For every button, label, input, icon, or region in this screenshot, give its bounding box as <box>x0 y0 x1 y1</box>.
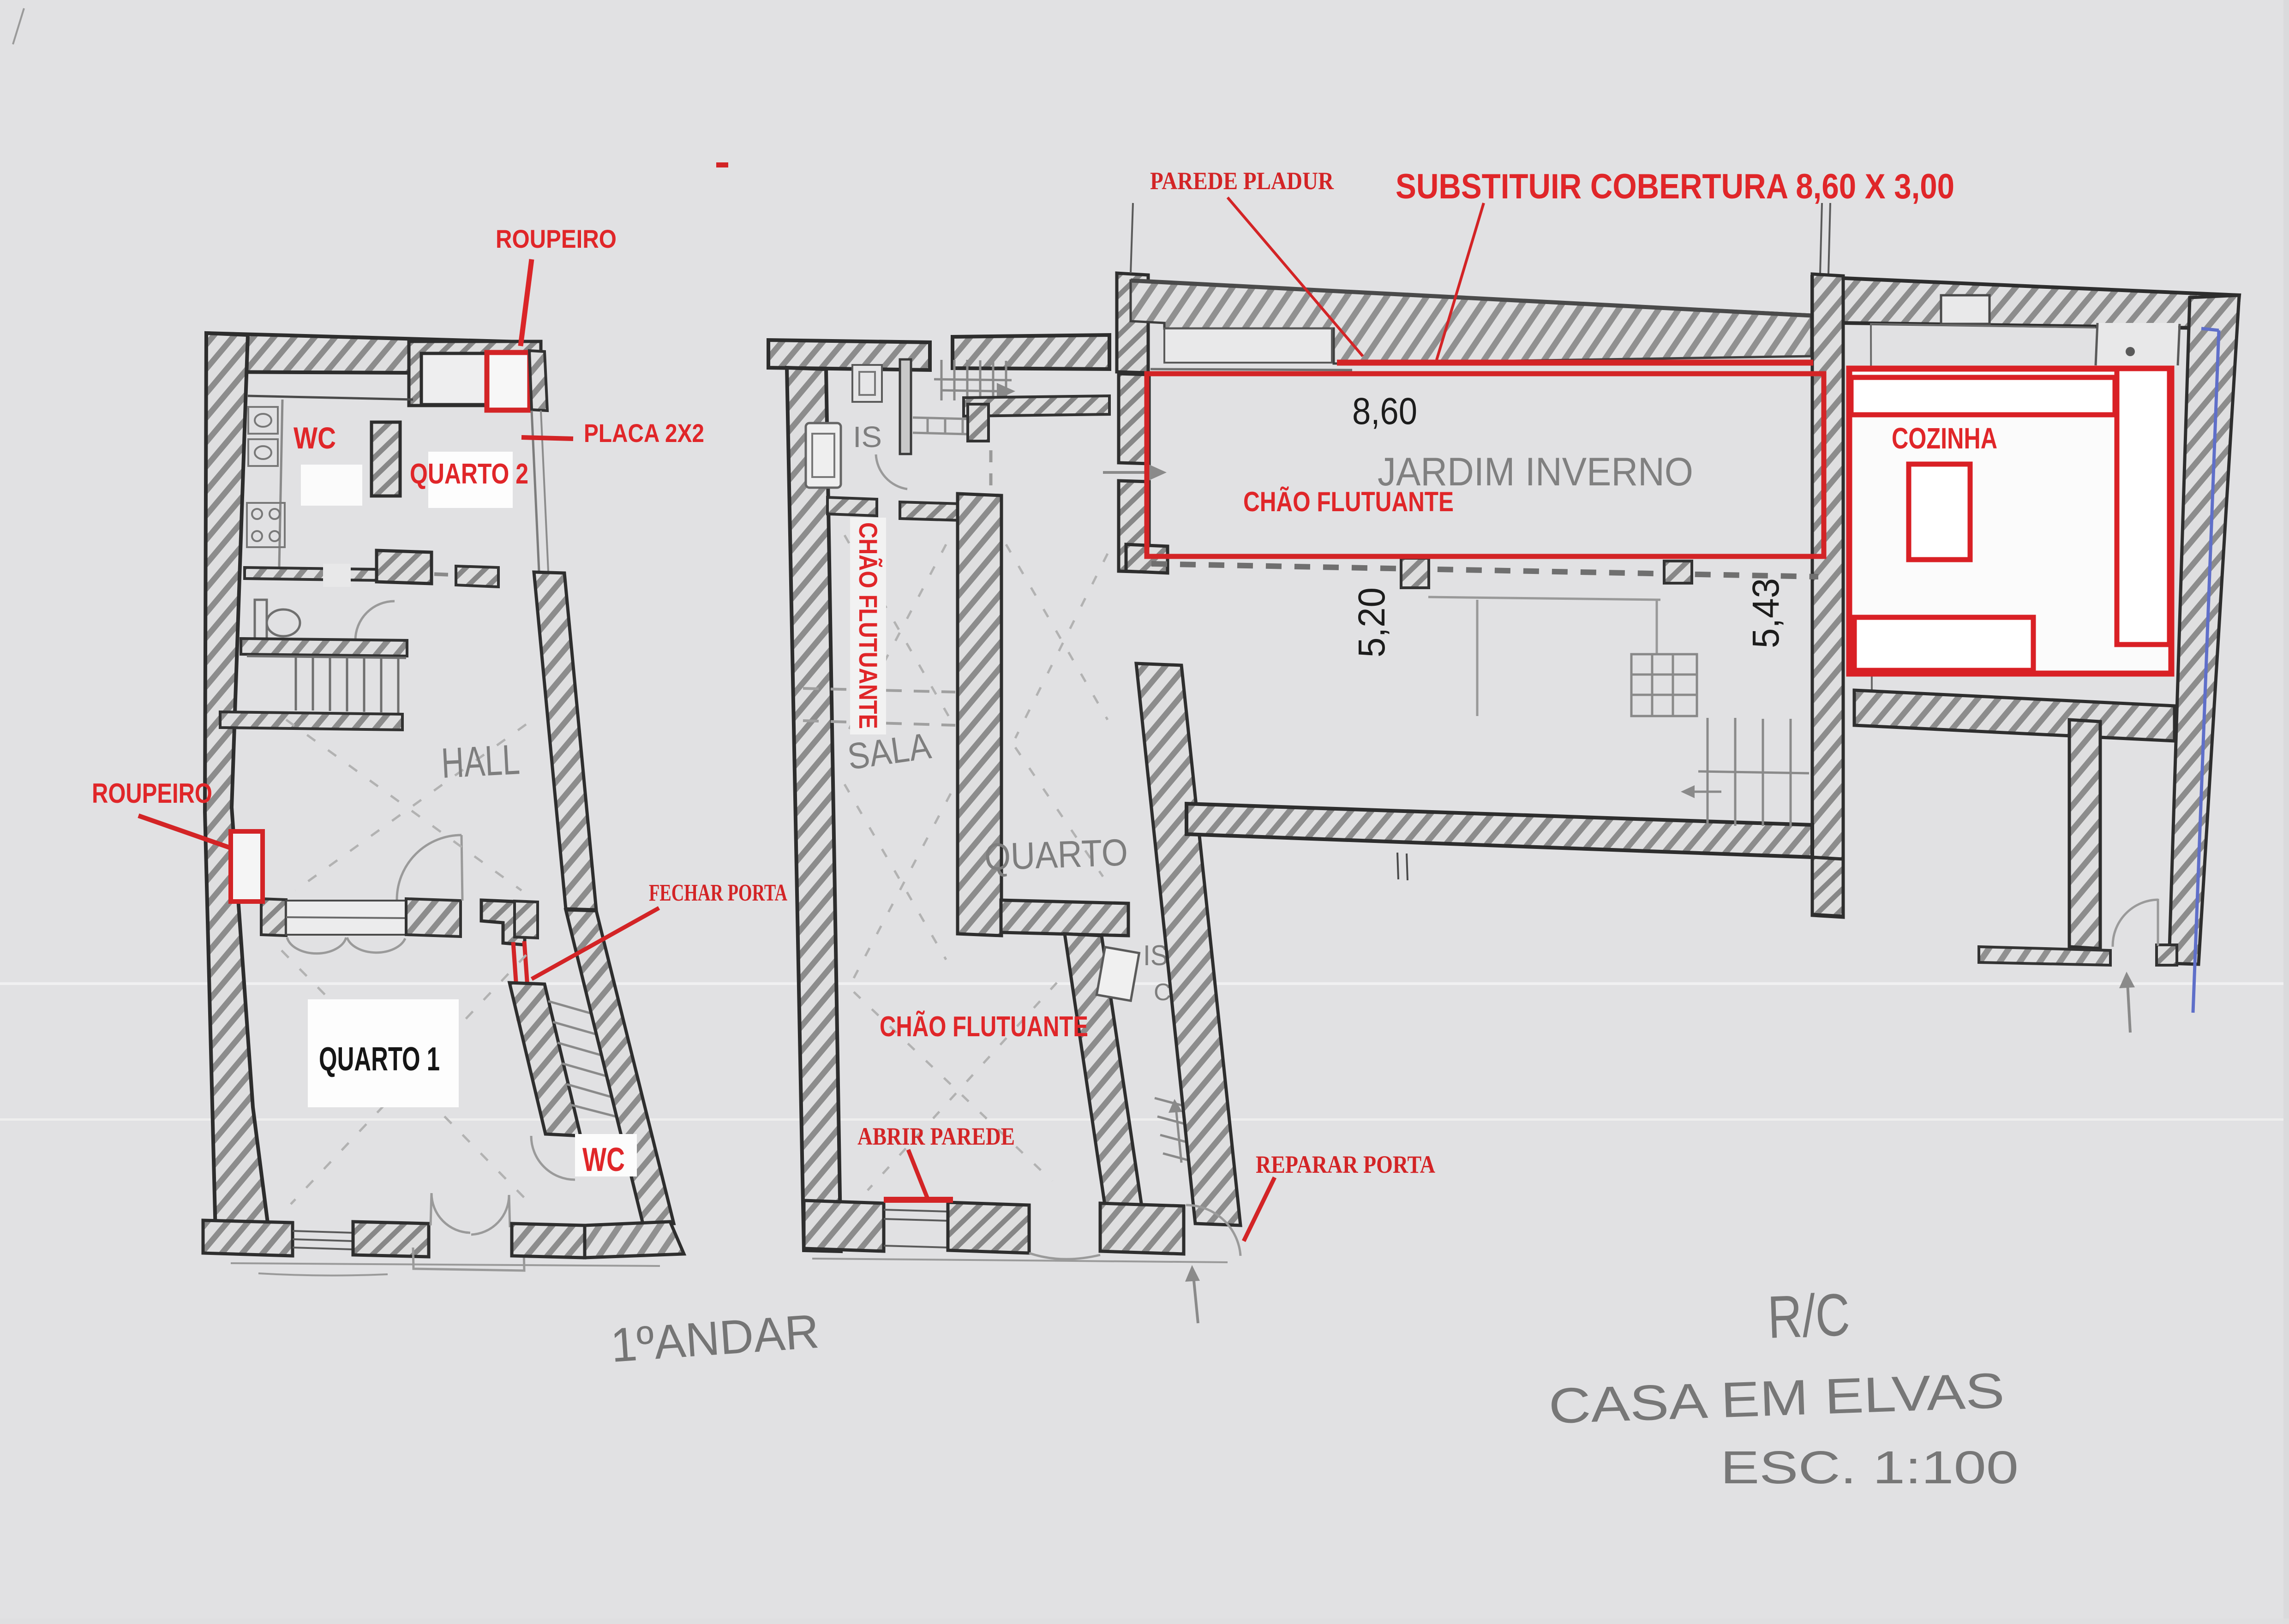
svg-text:QUARTO 1: QUARTO 1 <box>319 1041 440 1078</box>
svg-text:5,43: 5,43 <box>1745 578 1787 648</box>
svg-text:HALL: HALL <box>440 736 521 787</box>
svg-text:WC: WC <box>294 421 336 455</box>
svg-text:REPARAR PORTA: REPARAR PORTA <box>1256 1151 1435 1178</box>
svg-text:ESC. 1:100: ESC. 1:100 <box>1720 1442 2019 1493</box>
svg-text:WC: WC <box>582 1141 625 1178</box>
svg-text:IS: IS <box>853 420 882 454</box>
svg-text:PLACA 2X2: PLACA 2X2 <box>584 418 704 448</box>
svg-text:8,60: 8,60 <box>1352 390 1417 432</box>
svg-text:FECHAR PORTA: FECHAR PORTA <box>649 880 787 906</box>
svg-text:SUBSTITUIR COBERTURA 8,60 X 3,: SUBSTITUIR COBERTURA 8,60 X 3,00 <box>1396 167 1954 206</box>
svg-text:QUARTO 2: QUARTO 2 <box>410 458 528 490</box>
svg-text:PAREDE PLADUR: PAREDE PLADUR <box>1150 167 1334 195</box>
svg-text:ABRIR PAREDE: ABRIR PAREDE <box>857 1122 1015 1150</box>
svg-text:ROUPEIRO: ROUPEIRO <box>496 224 617 253</box>
svg-text:CHÃO FLUTUANTE: CHÃO FLUTUANTE <box>854 522 883 729</box>
svg-text:COZINHA: COZINHA <box>1892 422 1997 455</box>
svg-text:QUARTO: QUARTO <box>983 831 1128 878</box>
svg-text:CHÃO FLUTUANTE: CHÃO FLUTUANTE <box>880 1011 1088 1043</box>
svg-text:ROUPEIRO: ROUPEIRO <box>92 778 212 809</box>
svg-text:R/C: R/C <box>1767 1281 1851 1351</box>
svg-text:5,20: 5,20 <box>1351 587 1393 657</box>
svg-text:CHÃO FLUTUANTE: CHÃO FLUTUANTE <box>1243 486 1454 517</box>
